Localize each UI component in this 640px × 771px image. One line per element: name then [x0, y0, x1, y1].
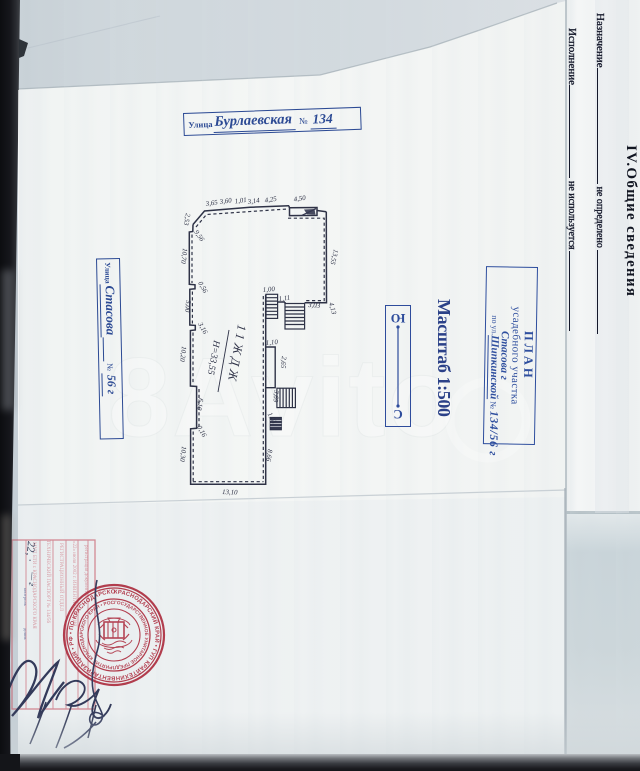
svg-text:доник: доник — [23, 628, 28, 641]
svg-text:контроль: контроль — [23, 588, 28, 606]
svg-text:ТЕХНИЧЕСКИЙ ПАСПОРТ № 134/56: ТЕХНИЧЕСКИЙ ПАСПОРТ № 134/56 — [45, 540, 51, 623]
svg-text:— г: — г — [27, 571, 38, 587]
svg-text:КРАСНОДАРСКИЙ КРАЙ • ГУП КРАЙТ: КРАСНОДАРСКИЙ КРАЙ • ГУП КРАЙТЕХИНВЕНТАР… — [0, 0, 161, 681]
svg-text:22‚ ·: 22‚ · — [23, 541, 37, 562]
svg-text:регистрация документов: регистрация документов — [83, 545, 88, 598]
svg-text:РЕГИСТРАЦИОННЫЙ ОТДЕЛ: РЕГИСТРАЦИОННЫЙ ОТДЕЛ — [58, 543, 64, 612]
